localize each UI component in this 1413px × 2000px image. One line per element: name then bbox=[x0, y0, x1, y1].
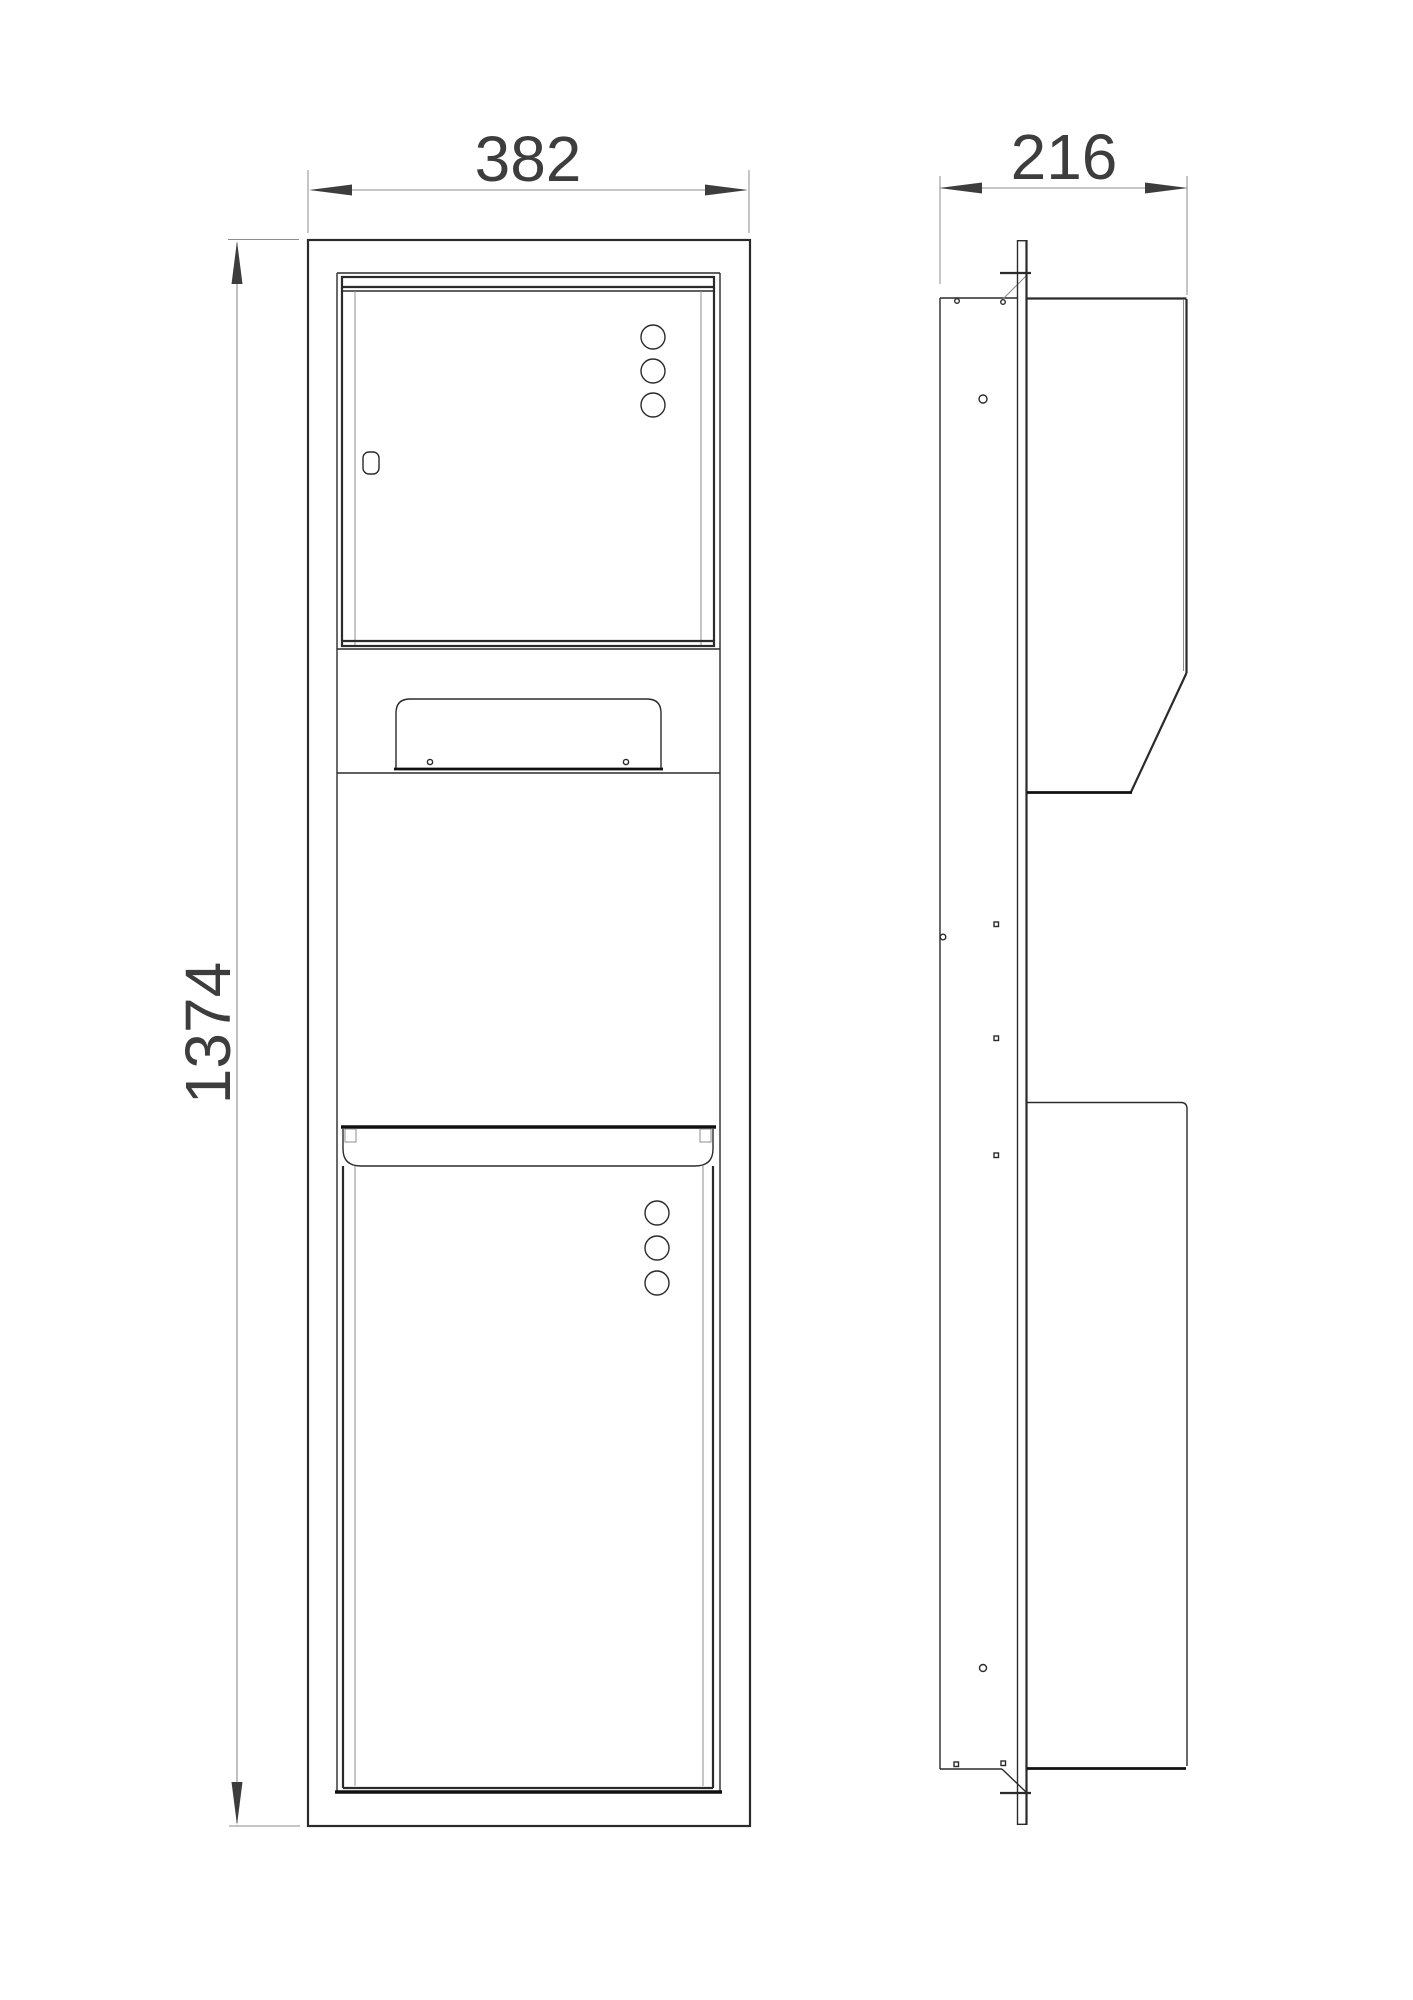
flap-hinge-right bbox=[700, 1129, 711, 1142]
dimension-height: 1374 bbox=[172, 240, 300, 1827]
dimension-depth: 216 bbox=[939, 121, 1188, 295]
tray-screw bbox=[623, 759, 628, 764]
lock-keyhole bbox=[363, 452, 379, 474]
waste-vent-holes bbox=[645, 1201, 669, 1295]
depth-dimension-label: 216 bbox=[1011, 121, 1118, 193]
waste-push-flap bbox=[343, 1129, 713, 1166]
dimension-width: 382 bbox=[308, 123, 749, 233]
height-dimension-label: 1374 bbox=[172, 962, 244, 1104]
waste-housing-profile bbox=[1027, 1103, 1187, 1769]
side-view bbox=[940, 240, 1187, 1825]
width-dimension-label: 382 bbox=[475, 123, 582, 195]
towel-slot-section bbox=[337, 649, 720, 773]
dispenser-housing-profile bbox=[1027, 299, 1187, 793]
mounting-holes bbox=[940, 299, 1005, 1767]
front-cavity bbox=[335, 273, 722, 1792]
arrow-left-icon bbox=[939, 183, 982, 194]
technical-drawing-page: 382 216 1374 bbox=[0, 0, 1413, 2000]
arrow-up-icon bbox=[232, 241, 243, 284]
recessed-body-profile bbox=[940, 276, 1026, 1792]
door-vent-holes bbox=[641, 325, 665, 417]
towel-slot-tray bbox=[396, 699, 661, 768]
front-view bbox=[308, 240, 750, 1826]
tray-screw bbox=[427, 759, 432, 764]
dispenser-door bbox=[342, 277, 714, 646]
wall-flange-profile bbox=[1000, 240, 1031, 1825]
arrow-down-icon bbox=[232, 1782, 243, 1825]
waste-door bbox=[341, 1127, 716, 1788]
dispenser-receptacle-drawing: 382 216 1374 bbox=[0, 0, 1413, 2000]
arrow-left-icon bbox=[309, 185, 352, 196]
front-outer-flange bbox=[308, 240, 750, 1826]
arrow-right-icon bbox=[1145, 183, 1188, 194]
arrow-right-icon bbox=[705, 185, 748, 196]
flap-hinge-left bbox=[345, 1129, 356, 1142]
